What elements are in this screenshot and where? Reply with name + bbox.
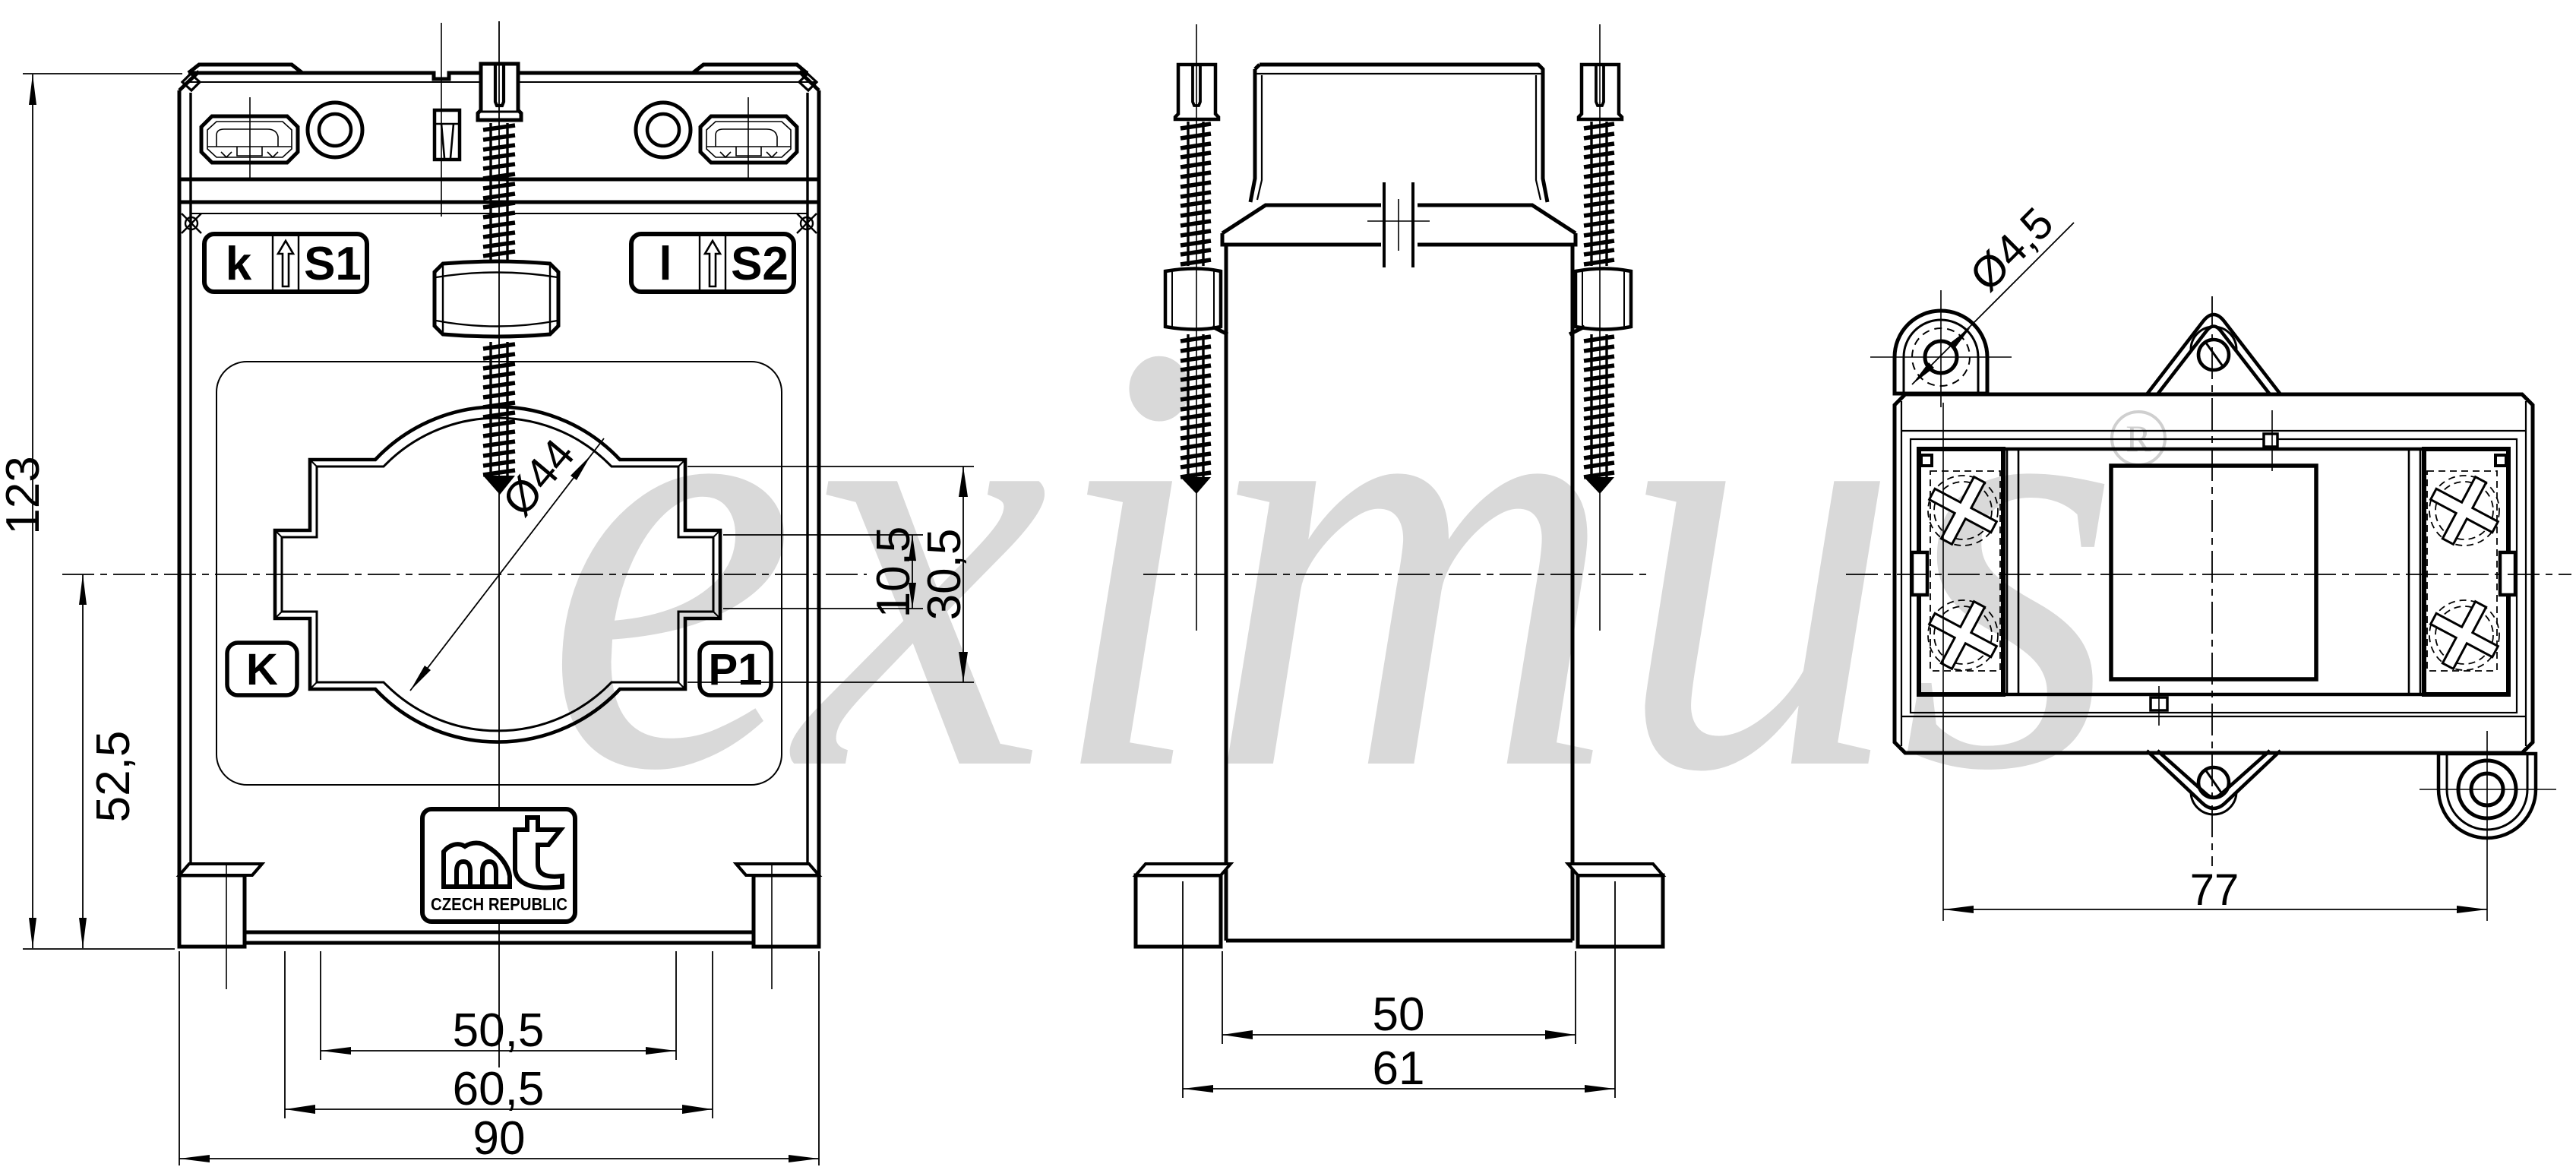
svg-text:30,5: 30,5 [918, 529, 971, 621]
svg-text:P1: P1 [709, 645, 763, 694]
svg-text:10,5: 10,5 [868, 527, 920, 618]
svg-text:52,5: 52,5 [87, 731, 140, 823]
svg-text:123: 123 [0, 456, 49, 534]
svg-text:77: 77 [2190, 865, 2239, 915]
svg-text:90: 90 [473, 1112, 526, 1165]
svg-text:60,5: 60,5 [453, 1063, 545, 1115]
svg-text:CZECH REPUBLIC: CZECH REPUBLIC [431, 894, 567, 914]
svg-text:S2: S2 [731, 238, 789, 290]
svg-text:S1: S1 [304, 238, 362, 290]
svg-text:k: k [226, 238, 252, 290]
svg-text:50: 50 [1373, 988, 1425, 1041]
svg-text:K: K [246, 645, 278, 694]
svg-text:l: l [659, 238, 672, 290]
svg-text:61: 61 [1373, 1042, 1425, 1095]
svg-text:50,5: 50,5 [453, 1004, 545, 1057]
